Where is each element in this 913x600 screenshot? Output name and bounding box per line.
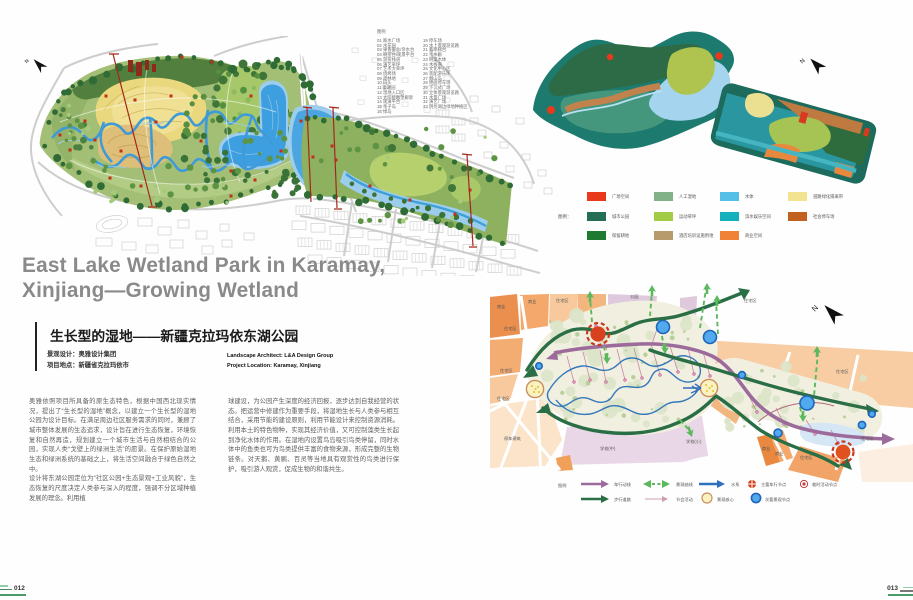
svg-text:商业: 商业: [775, 450, 783, 457]
svg-text:商业: 商业: [762, 445, 770, 452]
svg-text:次要景观节点: 次要景观节点: [765, 496, 790, 503]
svg-text:住宅区: 住宅区: [836, 368, 849, 374]
svg-text:临时活动节点: 临时活动节点: [812, 481, 837, 488]
svg-text:景观核心: 景观核心: [717, 496, 735, 503]
svg-text:住宅区: 住宅区: [861, 435, 874, 441]
svg-text:水系: 水系: [731, 481, 739, 487]
svg-text:主要车行节点: 主要车行节点: [761, 481, 786, 488]
svg-text:学校(中): 学校(中): [600, 445, 616, 452]
svg-text:住宅区: 住宅区: [500, 367, 513, 373]
svg-text:车行动线: 车行动线: [614, 481, 632, 488]
svg-text:N: N: [810, 303, 820, 313]
svg-text:图例: 图例: [558, 482, 566, 489]
svg-text:商业: 商业: [528, 298, 536, 305]
svg-text:步行道路: 步行道路: [614, 496, 632, 503]
svg-text:住宅区: 住宅区: [556, 297, 569, 303]
svg-text:停车建筑: 停车建筑: [504, 435, 522, 442]
svg-text:住宅区: 住宅区: [744, 297, 757, 303]
svg-text:景观轴线: 景观轴线: [676, 481, 694, 488]
svg-text:节会活动: 节会活动: [676, 496, 693, 503]
svg-text:住宅区: 住宅区: [504, 325, 517, 331]
svg-text:住宅区: 住宅区: [800, 454, 813, 460]
svg-text:住宅区: 住宅区: [497, 395, 510, 401]
svg-text:学校(小): 学校(小): [686, 438, 702, 445]
svg-text:N: N: [24, 58, 31, 65]
svg-text:N: N: [799, 58, 806, 65]
svg-text:商业: 商业: [497, 303, 505, 310]
